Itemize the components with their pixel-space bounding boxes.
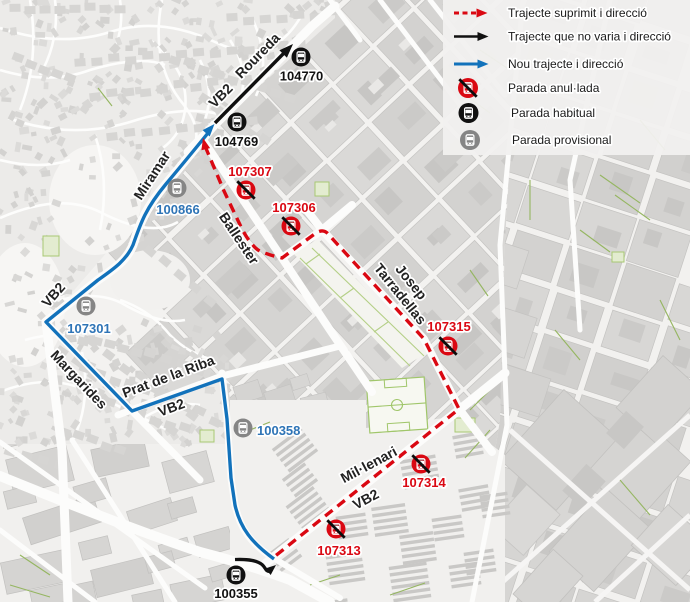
svg-text:107313: 107313 bbox=[317, 543, 360, 558]
svg-text:Trajecte que no varia i direcc: Trajecte que no varia i direcció bbox=[508, 30, 671, 44]
svg-text:107306: 107306 bbox=[272, 200, 315, 215]
svg-text:Parada anul·lada: Parada anul·lada bbox=[508, 81, 600, 95]
svg-text:107315: 107315 bbox=[427, 319, 470, 334]
svg-text:107301: 107301 bbox=[67, 321, 110, 336]
svg-text:107307: 107307 bbox=[228, 164, 271, 179]
svg-text:100358: 100358 bbox=[257, 423, 300, 438]
svg-text:107314: 107314 bbox=[402, 475, 446, 490]
svg-text:Parada provisional: Parada provisional bbox=[512, 133, 611, 147]
svg-text:Nou trajecte i direcció: Nou trajecte i direcció bbox=[508, 57, 624, 71]
svg-text:100355: 100355 bbox=[214, 586, 257, 601]
svg-text:104770: 104770 bbox=[280, 69, 323, 84]
svg-text:100866: 100866 bbox=[156, 202, 199, 217]
svg-text:Parada habitual: Parada habitual bbox=[511, 106, 595, 120]
svg-text:Trajecte suprimit i direcció: Trajecte suprimit i direcció bbox=[508, 6, 647, 20]
svg-text:104769: 104769 bbox=[215, 134, 258, 149]
